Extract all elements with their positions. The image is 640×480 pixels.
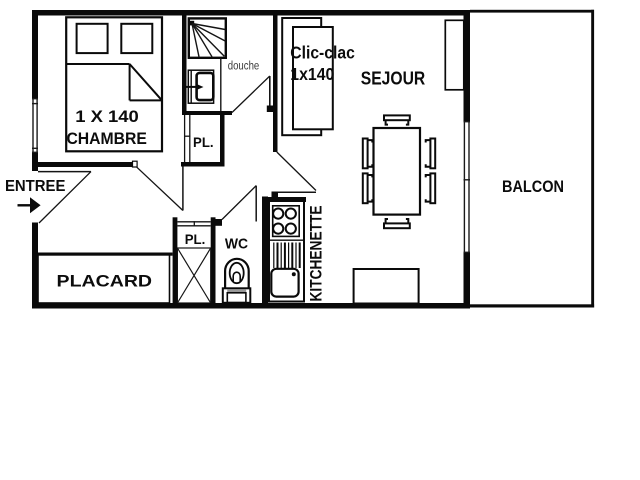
svg-text:PLACARD: PLACARD	[57, 271, 153, 290]
svg-text:1 X 140: 1 X 140	[75, 107, 139, 126]
svg-text:WC: WC	[225, 235, 248, 252]
svg-text:PL.: PL.	[185, 231, 206, 247]
svg-text:KITCHENETTE: KITCHENETTE	[306, 206, 325, 302]
svg-text:SEJOUR: SEJOUR	[361, 69, 426, 89]
svg-text:douche: douche	[228, 60, 260, 72]
svg-text:1x140: 1x140	[290, 64, 334, 84]
svg-text:PL.: PL.	[193, 134, 214, 150]
svg-text:BALCON: BALCON	[502, 177, 564, 196]
svg-text:ENTREE: ENTREE	[5, 178, 66, 195]
svg-text:Clic-clac: Clic-clac	[290, 43, 355, 63]
svg-text:CHAMBRE: CHAMBRE	[66, 129, 147, 148]
